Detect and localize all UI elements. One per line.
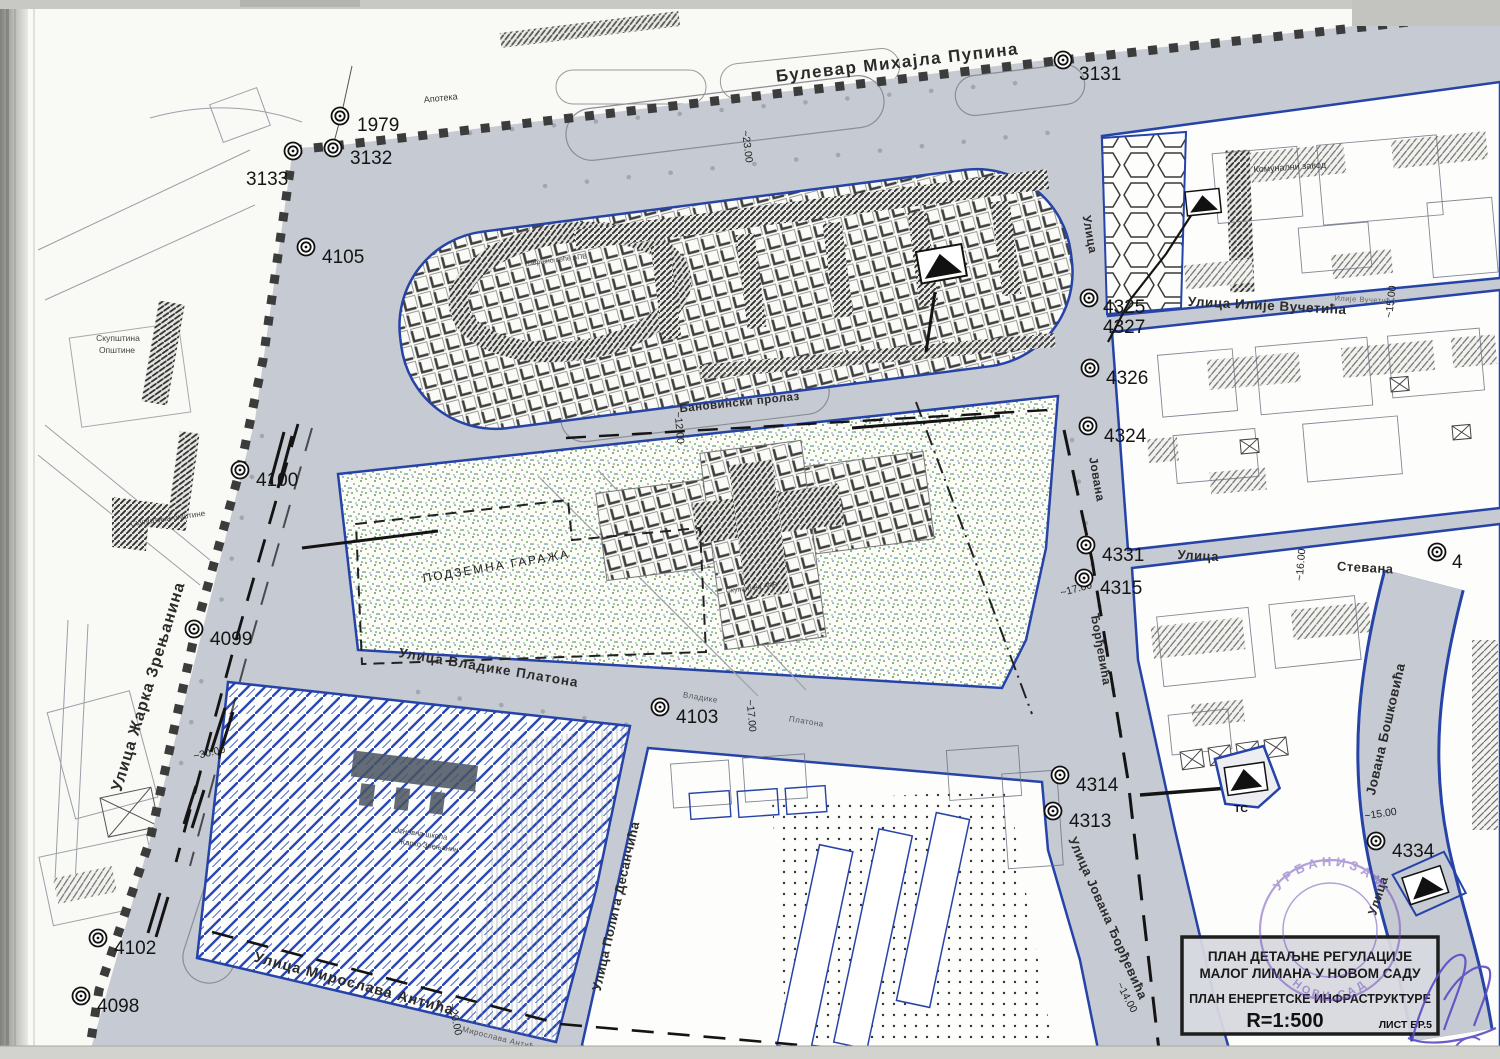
point-label: 4103 [676, 707, 718, 728]
sheet-number: ЛИСТ БР.5 [1379, 1019, 1432, 1031]
area-label-skupstina-1: Скупштина [96, 333, 140, 343]
point-label: 4326 [1106, 368, 1148, 389]
point-marker-dot [239, 469, 242, 472]
point-label: 3131 [1079, 64, 1121, 85]
point-label: 4315 [1100, 578, 1142, 599]
title-line1: ПЛАН ДЕТАЉНЕ РЕГУЛАЦИЈЕ [1208, 949, 1412, 964]
survey-point-4327: 4327 [1103, 317, 1145, 338]
point-label: 4325 [1103, 297, 1145, 318]
point-marker-dot [659, 706, 662, 709]
point-label: 1979 [357, 115, 399, 136]
point-label: 4314 [1076, 775, 1119, 796]
point-marker-dot [193, 628, 196, 631]
point-marker-dot [1083, 577, 1086, 580]
point-marker-dot [1375, 840, 1378, 843]
point-marker-dot [1059, 774, 1062, 777]
scanned-plan-sheet: Булевар Михајла ПупинаУлица Жарка Зрењан… [0, 0, 1500, 1059]
hex-paved-area [1102, 132, 1186, 314]
block-bottom-middle [582, 746, 1100, 1059]
point-label: 4334 [1392, 841, 1435, 862]
point-marker-dot [1089, 367, 1092, 370]
point-label: 4098 [97, 996, 139, 1017]
point-marker-dot [1085, 544, 1088, 547]
title-block: ПЛАН ДЕТАЉНЕ РЕГУЛАЦИЈЕ МАЛОГ ЛИМАНА У Н… [1182, 937, 1438, 1034]
roof-strip [1472, 640, 1498, 830]
point-label: 3133 [246, 169, 288, 190]
point-label: 4331 [1102, 545, 1144, 566]
point-marker-dot [305, 246, 308, 249]
street-label-ulica-stevana-2: Стевана [1337, 559, 1395, 577]
point-label: 4099 [210, 629, 252, 650]
point-label: 4327 [1103, 317, 1145, 338]
point-marker-dot [332, 147, 335, 150]
area-label-ts: ТС [1234, 803, 1248, 815]
transformer-station-icon [916, 244, 967, 284]
point-label: 4102 [114, 938, 156, 959]
point-label: 4313 [1069, 811, 1111, 832]
point-marker-dot [1088, 297, 1091, 300]
point-marker-dot [1052, 810, 1055, 813]
block-vucetica-stevana [1112, 290, 1500, 550]
point-label: 4 [1452, 552, 1463, 573]
point-marker-dot [1062, 59, 1065, 62]
transformer-station-icon [1185, 188, 1221, 215]
point-marker-dot [339, 115, 342, 118]
point-marker-dot [80, 995, 83, 998]
area-label-skupstina-2: Општине [99, 345, 135, 355]
point-marker-dot [292, 150, 295, 153]
point-label: 4324 [1104, 426, 1147, 447]
point-label: 3132 [350, 148, 392, 169]
map-canvas: Булевар Михајла ПупинаУлица Жарка Зрењан… [0, 0, 1500, 1059]
point-label: 4105 [322, 247, 364, 268]
point-marker-dot [1087, 425, 1090, 428]
street-label-ulica-stevana-1: Улица [1177, 547, 1219, 564]
point-marker-dot [97, 937, 100, 940]
scale-text: R=1:500 [1246, 1010, 1323, 1032]
point-marker-dot [1436, 551, 1439, 554]
point-label: 4100 [256, 470, 298, 491]
